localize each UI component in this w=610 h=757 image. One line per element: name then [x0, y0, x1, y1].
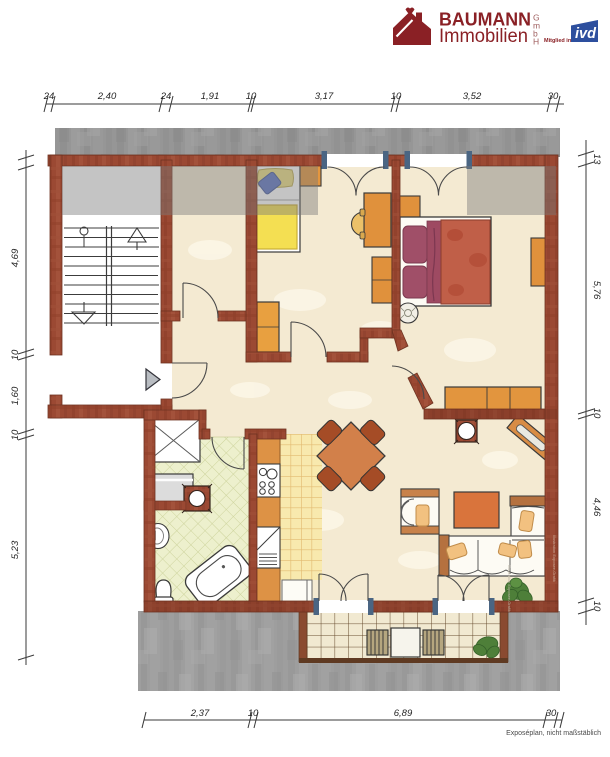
svg-text:H: H	[533, 37, 539, 47]
svg-text:10: 10	[391, 91, 402, 102]
svg-text:10: 10	[10, 349, 21, 360]
svg-text:Exposéplan, nicht maßstäblich: Exposéplan, nicht maßstäblich	[506, 730, 601, 737]
svg-text:10: 10	[246, 91, 257, 102]
svg-text:5,76: 5,76	[591, 281, 602, 300]
svg-text:1,91: 1,91	[201, 91, 220, 102]
svg-text:5,23: 5,23	[10, 540, 21, 559]
svg-text:10: 10	[248, 708, 259, 719]
svg-text:30: 30	[546, 708, 557, 719]
svg-text:Illustration Exposee-Grafik: Illustration Exposee-Grafik	[507, 565, 512, 612]
svg-text:30: 30	[548, 91, 559, 102]
svg-text:4,69: 4,69	[10, 248, 21, 267]
svg-text:1,60: 1,60	[10, 386, 21, 405]
svg-text:2,37: 2,37	[190, 708, 210, 719]
svg-text:13: 13	[591, 154, 602, 165]
svg-text:2,40: 2,40	[97, 91, 117, 102]
svg-text:3,17: 3,17	[315, 91, 334, 102]
svg-text:6,89: 6,89	[394, 708, 413, 719]
svg-text:10: 10	[591, 601, 602, 612]
svg-text:4,46: 4,46	[591, 498, 602, 517]
svg-text:ivd: ivd	[575, 26, 597, 42]
svg-text:24: 24	[160, 91, 172, 102]
svg-text:24: 24	[43, 91, 55, 102]
svg-text:3,52: 3,52	[463, 91, 482, 102]
svg-text:10: 10	[10, 429, 21, 440]
svg-text:Mitglied im: Mitglied im	[544, 38, 573, 44]
svg-text:Illustration Exposee-Grafik: Illustration Exposee-Grafik	[552, 535, 557, 582]
svg-text:10: 10	[591, 408, 602, 419]
svg-text:Immobilien: Immobilien	[439, 26, 528, 47]
